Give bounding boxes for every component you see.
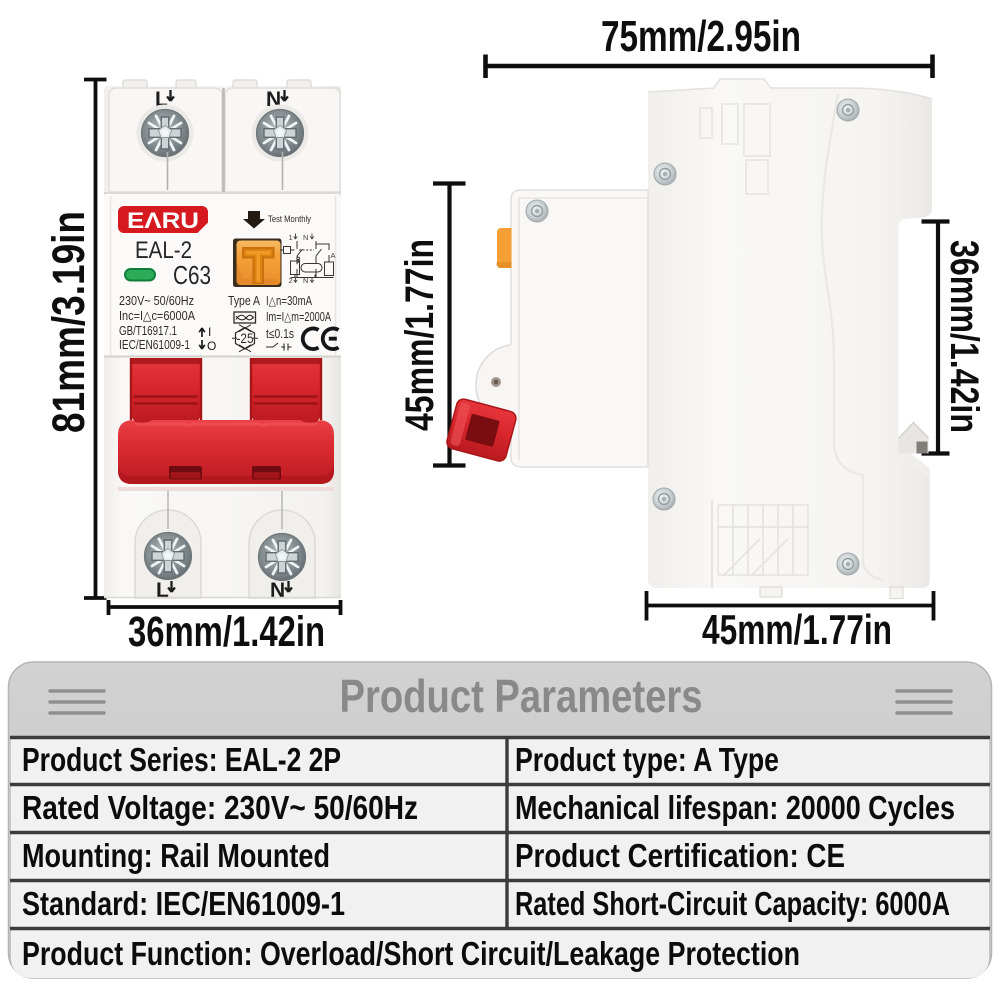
svg-text:I: I [208, 325, 211, 339]
svg-text:Im=I△m=2000A: Im=I△m=2000A [266, 310, 331, 324]
svg-text:IEC/EN61009-1: IEC/EN61009-1 [119, 337, 190, 352]
svg-text:Type A: Type A [228, 293, 260, 308]
svg-text:C63: C63 [173, 260, 211, 290]
svg-text:A: A [331, 251, 336, 260]
svg-text:81mm/3.19in: 81mm/3.19in [43, 211, 94, 433]
svg-text:Standard: IEC/EN61009-1: Standard: IEC/EN61009-1 [22, 886, 345, 923]
svg-text:1: 1 [289, 233, 293, 242]
svg-text:I△n=30mA: I△n=30mA [266, 294, 313, 308]
svg-text:45mm/1.77in: 45mm/1.77in [702, 606, 892, 653]
svg-text:Rated Short-Circuit Capacity:: Rated Short-Circuit Capacity: 6000A [515, 886, 950, 923]
svg-text:36mm/1.42in: 36mm/1.42in [128, 608, 325, 656]
svg-text:EΛRU: EΛRU [127, 208, 199, 233]
svg-text:Test Monthly: Test Monthly [268, 214, 311, 225]
svg-text:Product Certification: CE: Product Certification: CE [515, 838, 845, 875]
svg-text:Product Series: EAL-2 2P: Product Series: EAL-2 2P [22, 742, 341, 779]
svg-text:N: N [303, 276, 308, 285]
svg-text:45mm/1.77in: 45mm/1.77in [398, 239, 442, 431]
svg-text:Mounting: Rail Mounted: Mounting: Rail Mounted [22, 838, 330, 875]
svg-text:Product Function: Overload/Sho: Product Function: Overload/Short Circuit… [22, 936, 800, 973]
svg-text:Mechanical lifespan: 20000 Cyc: Mechanical lifespan: 20000 Cycles [515, 790, 955, 827]
svg-text:75mm/2.95in: 75mm/2.95in [601, 12, 801, 61]
svg-text:Inc=I△c=6000A: Inc=I△c=6000A [119, 308, 195, 323]
svg-text:GB/T16917.1: GB/T16917.1 [119, 323, 177, 338]
svg-text:t≤0.1s: t≤0.1s [266, 327, 294, 341]
svg-text:N: N [270, 579, 285, 602]
svg-text:2: 2 [289, 276, 293, 285]
svg-text:Product type: A Type: Product type: A Type [515, 742, 779, 779]
svg-text:230V~ 50/60Hz: 230V~ 50/60Hz [119, 293, 194, 308]
svg-text:L: L [156, 579, 169, 602]
svg-text:-25: -25 [237, 331, 254, 346]
svg-text:N: N [303, 233, 308, 242]
svg-text:Rated Voltage: 230V~ 50/60Hz: Rated Voltage: 230V~ 50/60Hz [22, 790, 418, 827]
svg-text:36mm/1.42in: 36mm/1.42in [942, 240, 986, 433]
svg-text:Product Parameters: Product Parameters [340, 670, 703, 722]
svg-text:O: O [207, 339, 216, 353]
